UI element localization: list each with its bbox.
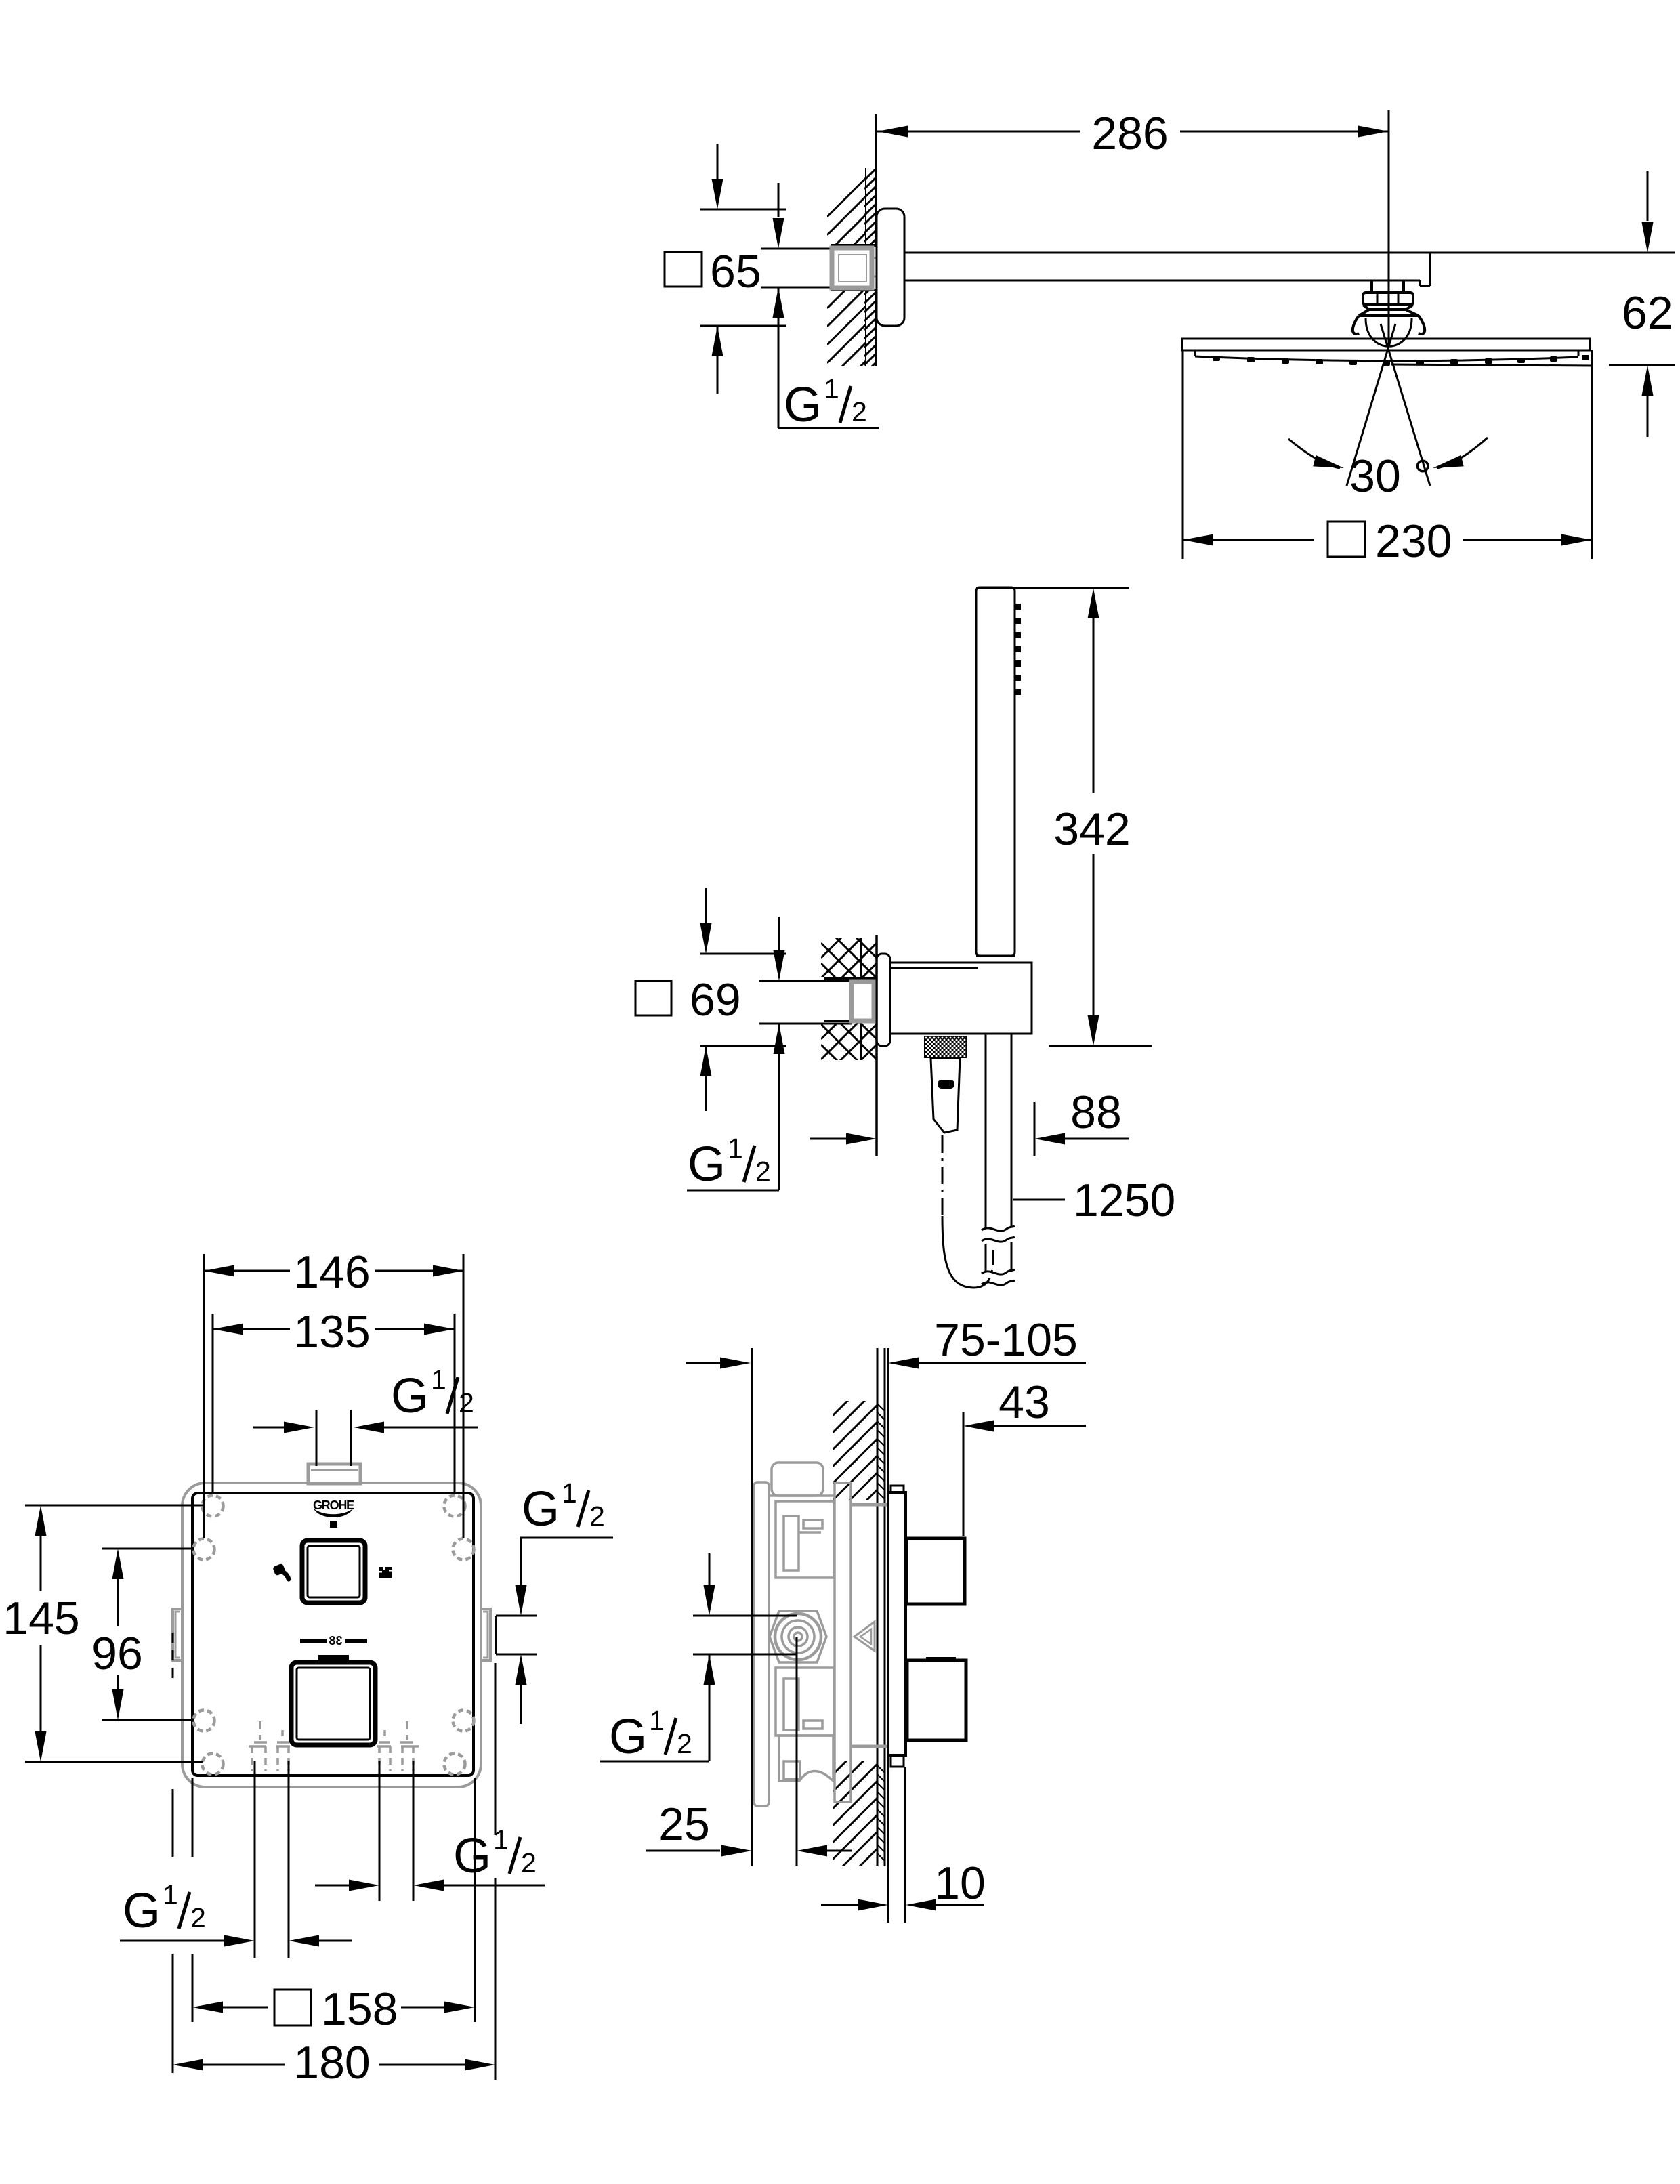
svg-text:342: 342 (1053, 803, 1130, 855)
svg-text:158: 158 (321, 1983, 398, 2035)
svg-text:GROHE: GROHE (313, 1498, 354, 1512)
svg-text:135: 135 (293, 1306, 370, 1358)
svg-text:75-105: 75-105 (934, 1314, 1078, 1366)
svg-text:69: 69 (690, 974, 741, 1026)
svg-text:43: 43 (999, 1377, 1050, 1428)
svg-text:25: 25 (658, 1799, 710, 1850)
svg-text:65: 65 (710, 246, 761, 297)
svg-text:230: 230 (1375, 516, 1452, 567)
svg-text:96: 96 (91, 1628, 143, 1679)
svg-text:62: 62 (1622, 287, 1673, 339)
svg-text:10: 10 (934, 1857, 986, 1909)
svg-text:1250: 1250 (1073, 1175, 1175, 1226)
svg-text:30 °: 30 ° (1349, 450, 1432, 502)
svg-text:88: 88 (1070, 1087, 1122, 1138)
svg-text:286: 286 (1091, 108, 1168, 159)
svg-text:180: 180 (293, 2037, 370, 2088)
svg-text:145: 145 (3, 1593, 79, 1644)
svg-text:146: 146 (293, 1246, 370, 1298)
svg-text:38: 38 (329, 1634, 342, 1647)
